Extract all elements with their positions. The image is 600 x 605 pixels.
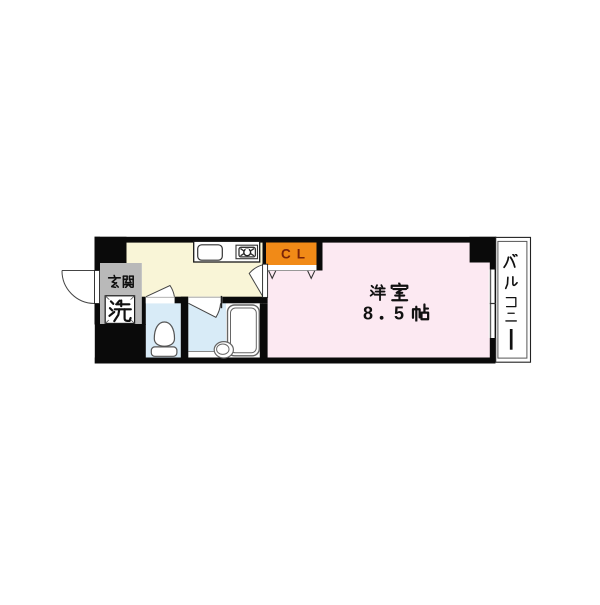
svg-text:8: 8 <box>363 303 373 323</box>
svg-text:CL: CL <box>281 246 311 261</box>
svg-text:5: 5 <box>394 303 404 323</box>
